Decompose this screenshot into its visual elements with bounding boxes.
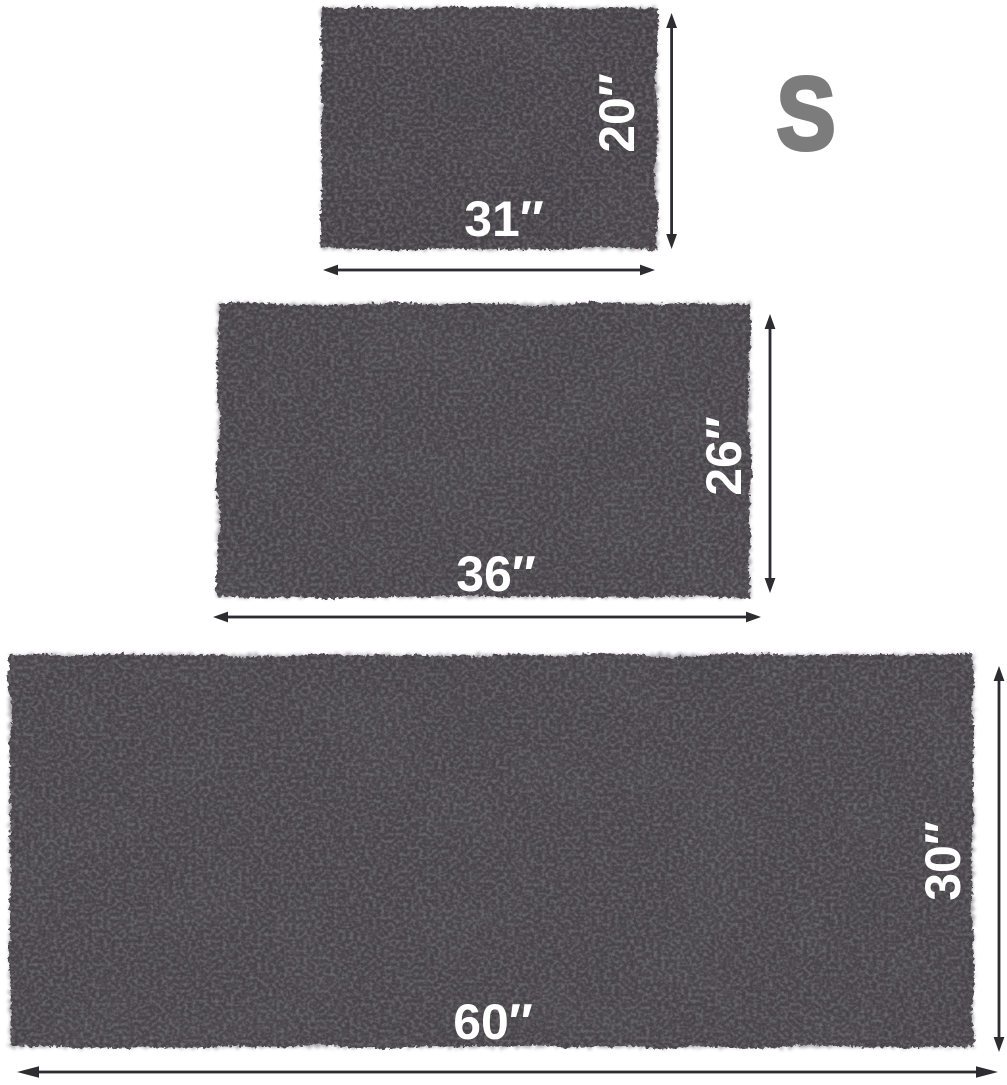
svg-text:31″: 31″ <box>464 191 544 247</box>
svg-text:60″: 60″ <box>453 994 533 1050</box>
svg-text:36″: 36″ <box>456 546 536 602</box>
svg-text:30″: 30″ <box>915 821 971 901</box>
svg-text:20″: 20″ <box>589 73 645 153</box>
svg-text:S: S <box>776 57 835 172</box>
svg-text:26″: 26″ <box>696 416 752 496</box>
